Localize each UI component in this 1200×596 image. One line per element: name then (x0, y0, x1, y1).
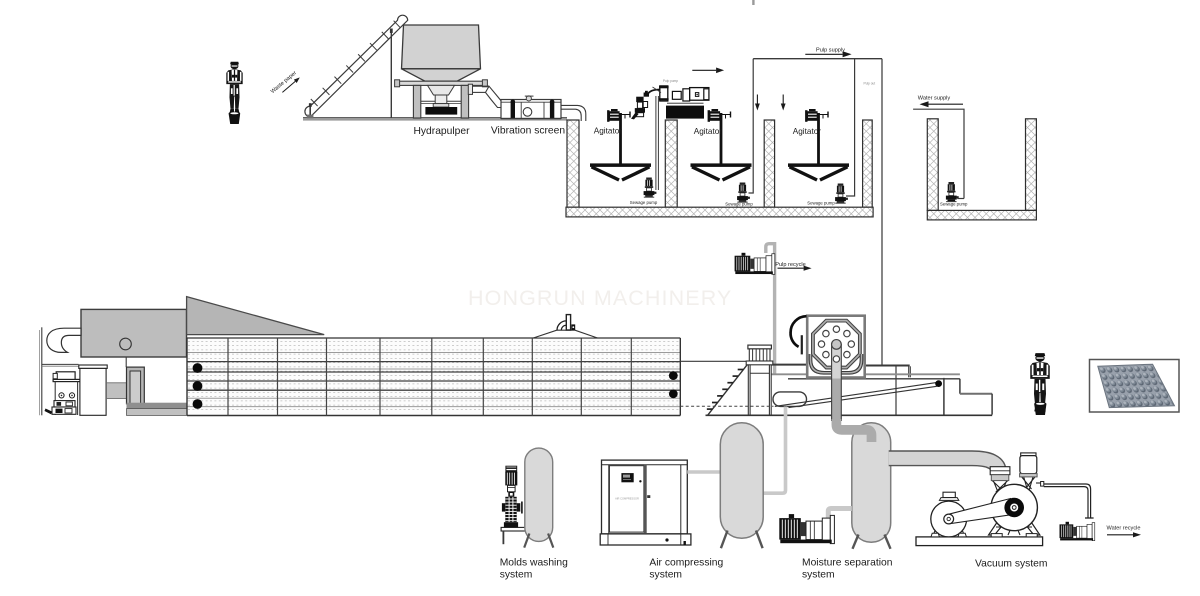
svg-text:Water supply: Water supply (918, 95, 951, 101)
svg-text:Moisture separation: Moisture separation (802, 558, 893, 569)
svg-text:Agitator: Agitator (694, 127, 722, 136)
svg-text:Hydrapulper: Hydrapulper (413, 126, 470, 137)
svg-text:system: system (802, 569, 835, 580)
svg-text:Agitator: Agitator (793, 127, 821, 136)
svg-text:Sewage pump: Sewage pump (807, 200, 835, 205)
svg-text:system: system (500, 569, 533, 580)
svg-text:Pulp supply: Pulp supply (816, 48, 845, 54)
svg-text:Water recycle: Water recycle (1107, 526, 1141, 532)
svg-text:Vibration screen: Vibration screen (491, 126, 565, 137)
svg-text:Molds washing: Molds washing (500, 558, 568, 569)
svg-text:Vacuum system: Vacuum system (975, 559, 1047, 570)
svg-text:AIR COMPRESSOR: AIR COMPRESSOR (615, 497, 639, 501)
svg-text:Pulp pump: Pulp pump (663, 79, 678, 83)
svg-text:Air compressing: Air compressing (649, 558, 723, 569)
svg-text:Agitator: Agitator (594, 126, 622, 135)
svg-text:Sewage pump: Sewage pump (725, 202, 753, 207)
svg-text:Sewage pump: Sewage pump (940, 201, 968, 206)
svg-text:system: system (649, 569, 682, 580)
svg-text:Pulp recycle: Pulp recycle (775, 262, 805, 268)
svg-text:Sewage pump: Sewage pump (630, 200, 658, 205)
svg-text:HONGRUN MACHINERY: HONGRUN MACHINERY (468, 286, 732, 310)
svg-text:Pulp out: Pulp out (863, 82, 875, 86)
